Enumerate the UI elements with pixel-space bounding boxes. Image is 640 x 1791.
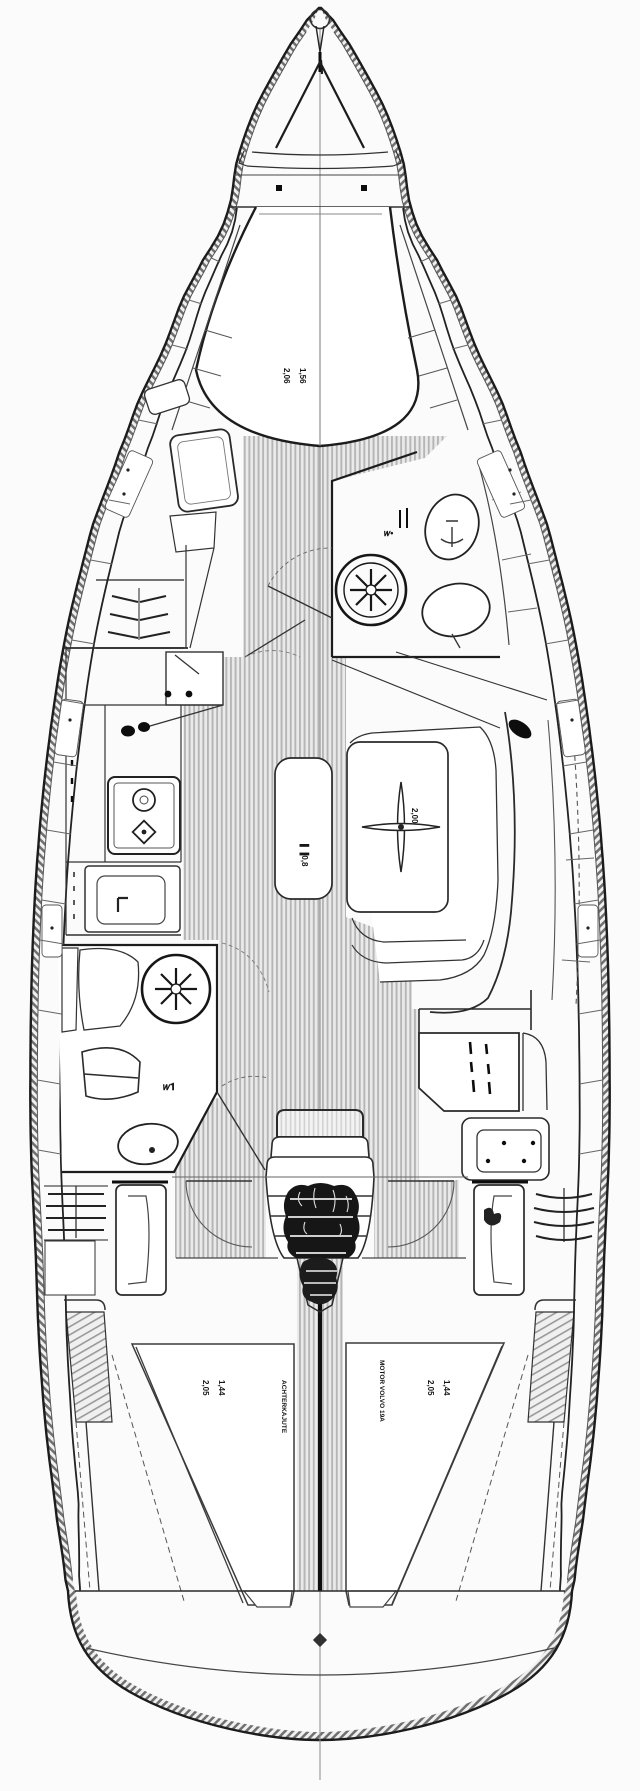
- svg-text:1,44: 1,44: [442, 1380, 451, 1396]
- svg-text:𝑤•: 𝑤•: [384, 528, 393, 538]
- svg-text:2,05: 2,05: [426, 1380, 435, 1396]
- svg-text:MOTOR VOLVO 19A: MOTOR VOLVO 19A: [378, 1360, 385, 1422]
- svg-text:1,56: 1,56: [298, 368, 307, 384]
- svg-text:▌▐0,8: ▌▐0,8: [299, 844, 310, 867]
- svg-text:2,06: 2,06: [282, 368, 291, 384]
- svg-text:2,05: 2,05: [201, 1380, 210, 1396]
- svg-text:1,44: 1,44: [217, 1380, 226, 1396]
- svg-text:𝑤𝟏: 𝑤𝟏: [162, 1082, 176, 1093]
- svg-text:2,00: 2,00: [410, 808, 419, 824]
- svg-text:ACHTERKAJUTE: ACHTERKAJUTE: [280, 1380, 287, 1434]
